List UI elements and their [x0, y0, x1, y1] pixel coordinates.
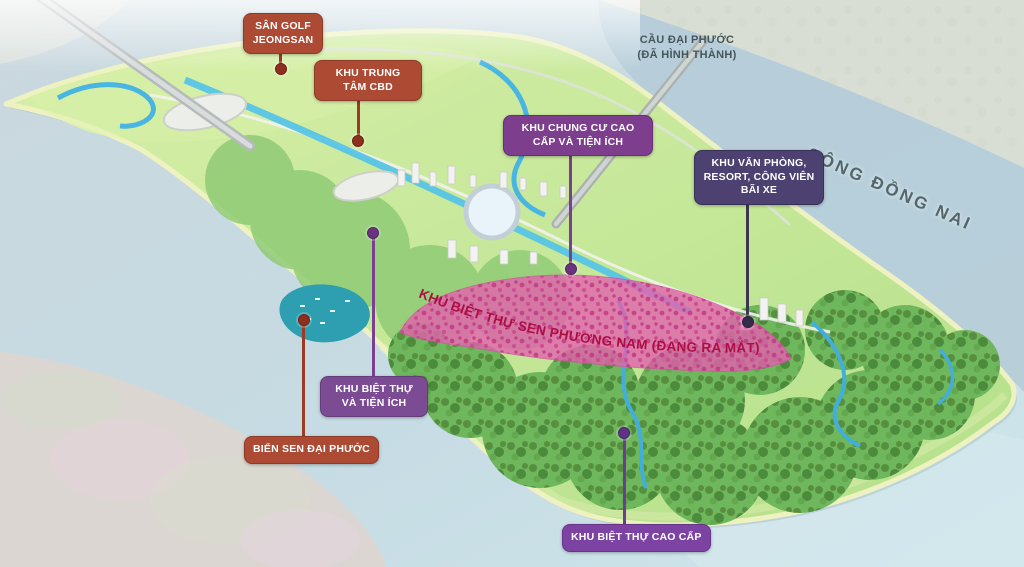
dot-san-golf	[275, 63, 287, 75]
masterplan-render: KHU BIỆT THỰ SEN PHƯƠNG NAM (ĐANG RA MẮT…	[0, 0, 1024, 567]
dot-biet-thu-tien-ich	[367, 227, 379, 239]
label-khu-trung-tam-cbd: KHU TRUNG TÂM CBD	[314, 60, 422, 101]
label-text: KHU BIỆT THỰ VÀ TIỆN ÍCH	[335, 383, 413, 409]
bridge-note: CẦU ĐẠI PHƯỚC (ĐÃ HÌNH THÀNH)	[612, 33, 762, 63]
lead-van-phong	[746, 203, 749, 321]
label-text: BIỂN SEN ĐẠI PHƯỚC	[253, 443, 370, 455]
lead-biet-thu-tien-ich	[372, 232, 375, 377]
dot-cbd	[352, 135, 364, 147]
dot-van-phong	[742, 316, 754, 328]
label-khu-chung-cu: KHU CHUNG CƯ CAO CẤP VÀ TIỆN ÍCH	[503, 115, 653, 156]
label-san-golf-jeongsan: SÂN GOLF JEONGSAN	[243, 13, 323, 54]
label-text: KHU BIỆT THỰ CAO CẤP	[571, 531, 702, 543]
lead-chung-cu	[569, 150, 572, 268]
dot-bien-sen	[298, 314, 310, 326]
circular-lake	[466, 186, 518, 238]
label-text: SÂN GOLF JEONGSAN	[253, 20, 314, 46]
label-khu-biet-thu-tien-ich: KHU BIỆT THỰ VÀ TIỆN ÍCH	[320, 376, 428, 417]
bridge-note-line1: CẦU ĐẠI PHƯỚC	[612, 33, 762, 48]
label-text: KHU VĂN PHÒNG, RESORT, CÔNG VIÊN BÃI XE	[704, 157, 815, 196]
dot-chung-cu	[565, 263, 577, 275]
label-bien-sen-dai-phuoc: BIỂN SEN ĐẠI PHƯỚC	[244, 436, 379, 464]
label-text: KHU CHUNG CƯ CAO CẤP VÀ TIỆN ÍCH	[522, 122, 635, 148]
masterplan-screenshot: KHU BIỆT THỰ SEN PHƯƠNG NAM (ĐANG RA MẮT…	[0, 0, 1024, 567]
dot-cao-cap	[618, 427, 630, 439]
lead-cao-cap	[623, 432, 626, 524]
label-khu-biet-thu-cao-cap: KHU BIỆT THỰ CAO CẤP	[562, 524, 711, 552]
bridge-note-line2: (ĐÃ HÌNH THÀNH)	[612, 48, 762, 63]
label-text: KHU TRUNG TÂM CBD	[336, 67, 401, 93]
label-khu-van-phong: KHU VĂN PHÒNG, RESORT, CÔNG VIÊN BÃI XE	[694, 150, 824, 205]
lead-bien-sen	[302, 319, 305, 436]
